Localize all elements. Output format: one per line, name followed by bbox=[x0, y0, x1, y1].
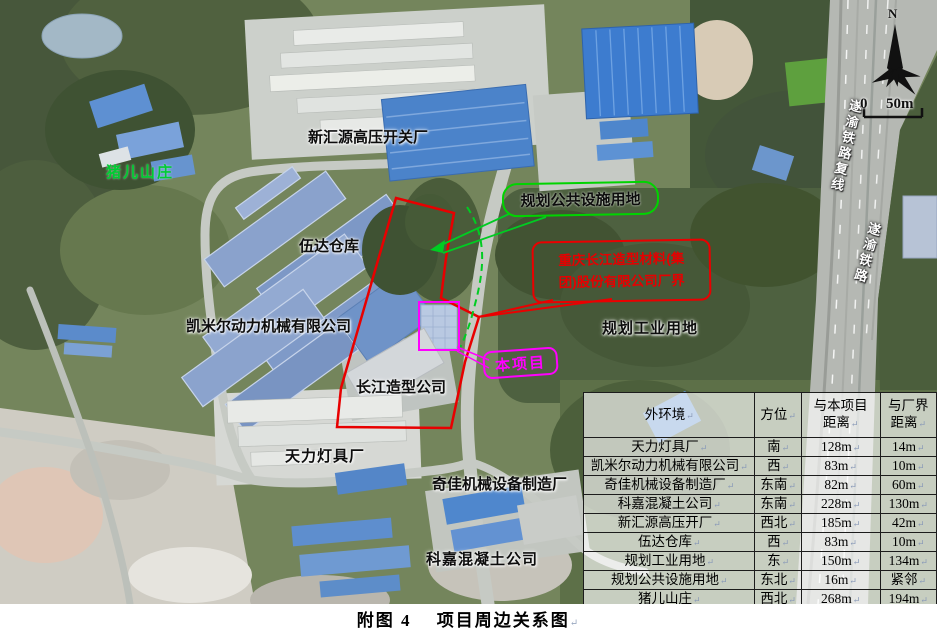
table-row: 伍达仓库西 83m10m bbox=[584, 533, 937, 552]
figure-caption: 附图 4 项目周边关系图 bbox=[0, 606, 937, 631]
label-kejia-concrete: 科嘉混凝土公司 bbox=[426, 548, 538, 569]
header-distance-boundary: 与厂界 距离 bbox=[880, 393, 937, 438]
callout-factory-boundary: 重庆长江造型材料(集 团)股份有限公司厂界 bbox=[531, 238, 711, 303]
label-zhuer-village: 猪儿山庄 bbox=[106, 161, 174, 182]
north-indicator: N bbox=[888, 6, 897, 22]
header-environment: 外环境 bbox=[584, 393, 755, 438]
scale-zero: 0 bbox=[860, 96, 868, 113]
table-row: 天力灯具厂南 128m14m bbox=[584, 438, 937, 457]
label-planned-industrial-land: 规划工业用地 bbox=[602, 317, 698, 338]
scale-50m: 50m bbox=[886, 96, 914, 113]
table-row: 规划公共设施用地东北 16m紧邻 bbox=[584, 571, 937, 590]
label-wuda-warehouse: 伍达仓库 bbox=[299, 235, 359, 256]
table-row: 规划工业用地东 150m134m bbox=[584, 552, 937, 571]
figure-project-surroundings: 新汇源高压开关厂 猪儿山庄 伍达仓库 凯米尔动力机械有限公司 长江造型公司 天力… bbox=[0, 0, 937, 631]
header-direction: 方位 bbox=[755, 393, 801, 438]
label-changjiang-molding: 长江造型公司 bbox=[356, 376, 446, 397]
table-row: 新汇源高压开厂西北 185m42m bbox=[584, 514, 937, 533]
table-row: 猪儿山庄西北 268m194m bbox=[584, 590, 937, 605]
surroundings-distance-table: 外环境 方位 与本项目 距离 与厂界 距离 天力灯具厂南 128m14m 凯米尔… bbox=[583, 392, 937, 604]
callout-factory-boundary-text: 重庆长江造型材料(集 团)股份有限公司厂界 bbox=[558, 248, 685, 293]
header-distance-project: 与本项目 距离 bbox=[801, 393, 880, 438]
label-kaimier-machinery: 凯米尔动力机械有限公司 bbox=[186, 315, 351, 336]
callout-planned-public-facilities: 规划公共设施用地 bbox=[502, 181, 660, 218]
table-row: 凯米尔动力机械有限公司西 83m10m bbox=[584, 457, 937, 476]
table-row: 科嘉混凝土公司东南 228m130m bbox=[584, 495, 937, 514]
satellite-map: 新汇源高压开关厂 猪儿山庄 伍达仓库 凯米尔动力机械有限公司 长江造型公司 天力… bbox=[0, 0, 937, 604]
table-header-row: 外环境 方位 与本项目 距离 与厂界 距离 bbox=[584, 393, 937, 438]
callout-this-project: 本项目 bbox=[482, 346, 559, 379]
label-qijia-equipment: 奇佳机械设备制造厂 bbox=[432, 473, 567, 494]
label-xinhuiyuan-factory: 新汇源高压开关厂 bbox=[308, 126, 428, 147]
table-row: 奇佳机械设备制造厂东南 82m60m bbox=[584, 476, 937, 495]
label-tianli-lighting: 天力灯具厂 bbox=[285, 445, 365, 466]
